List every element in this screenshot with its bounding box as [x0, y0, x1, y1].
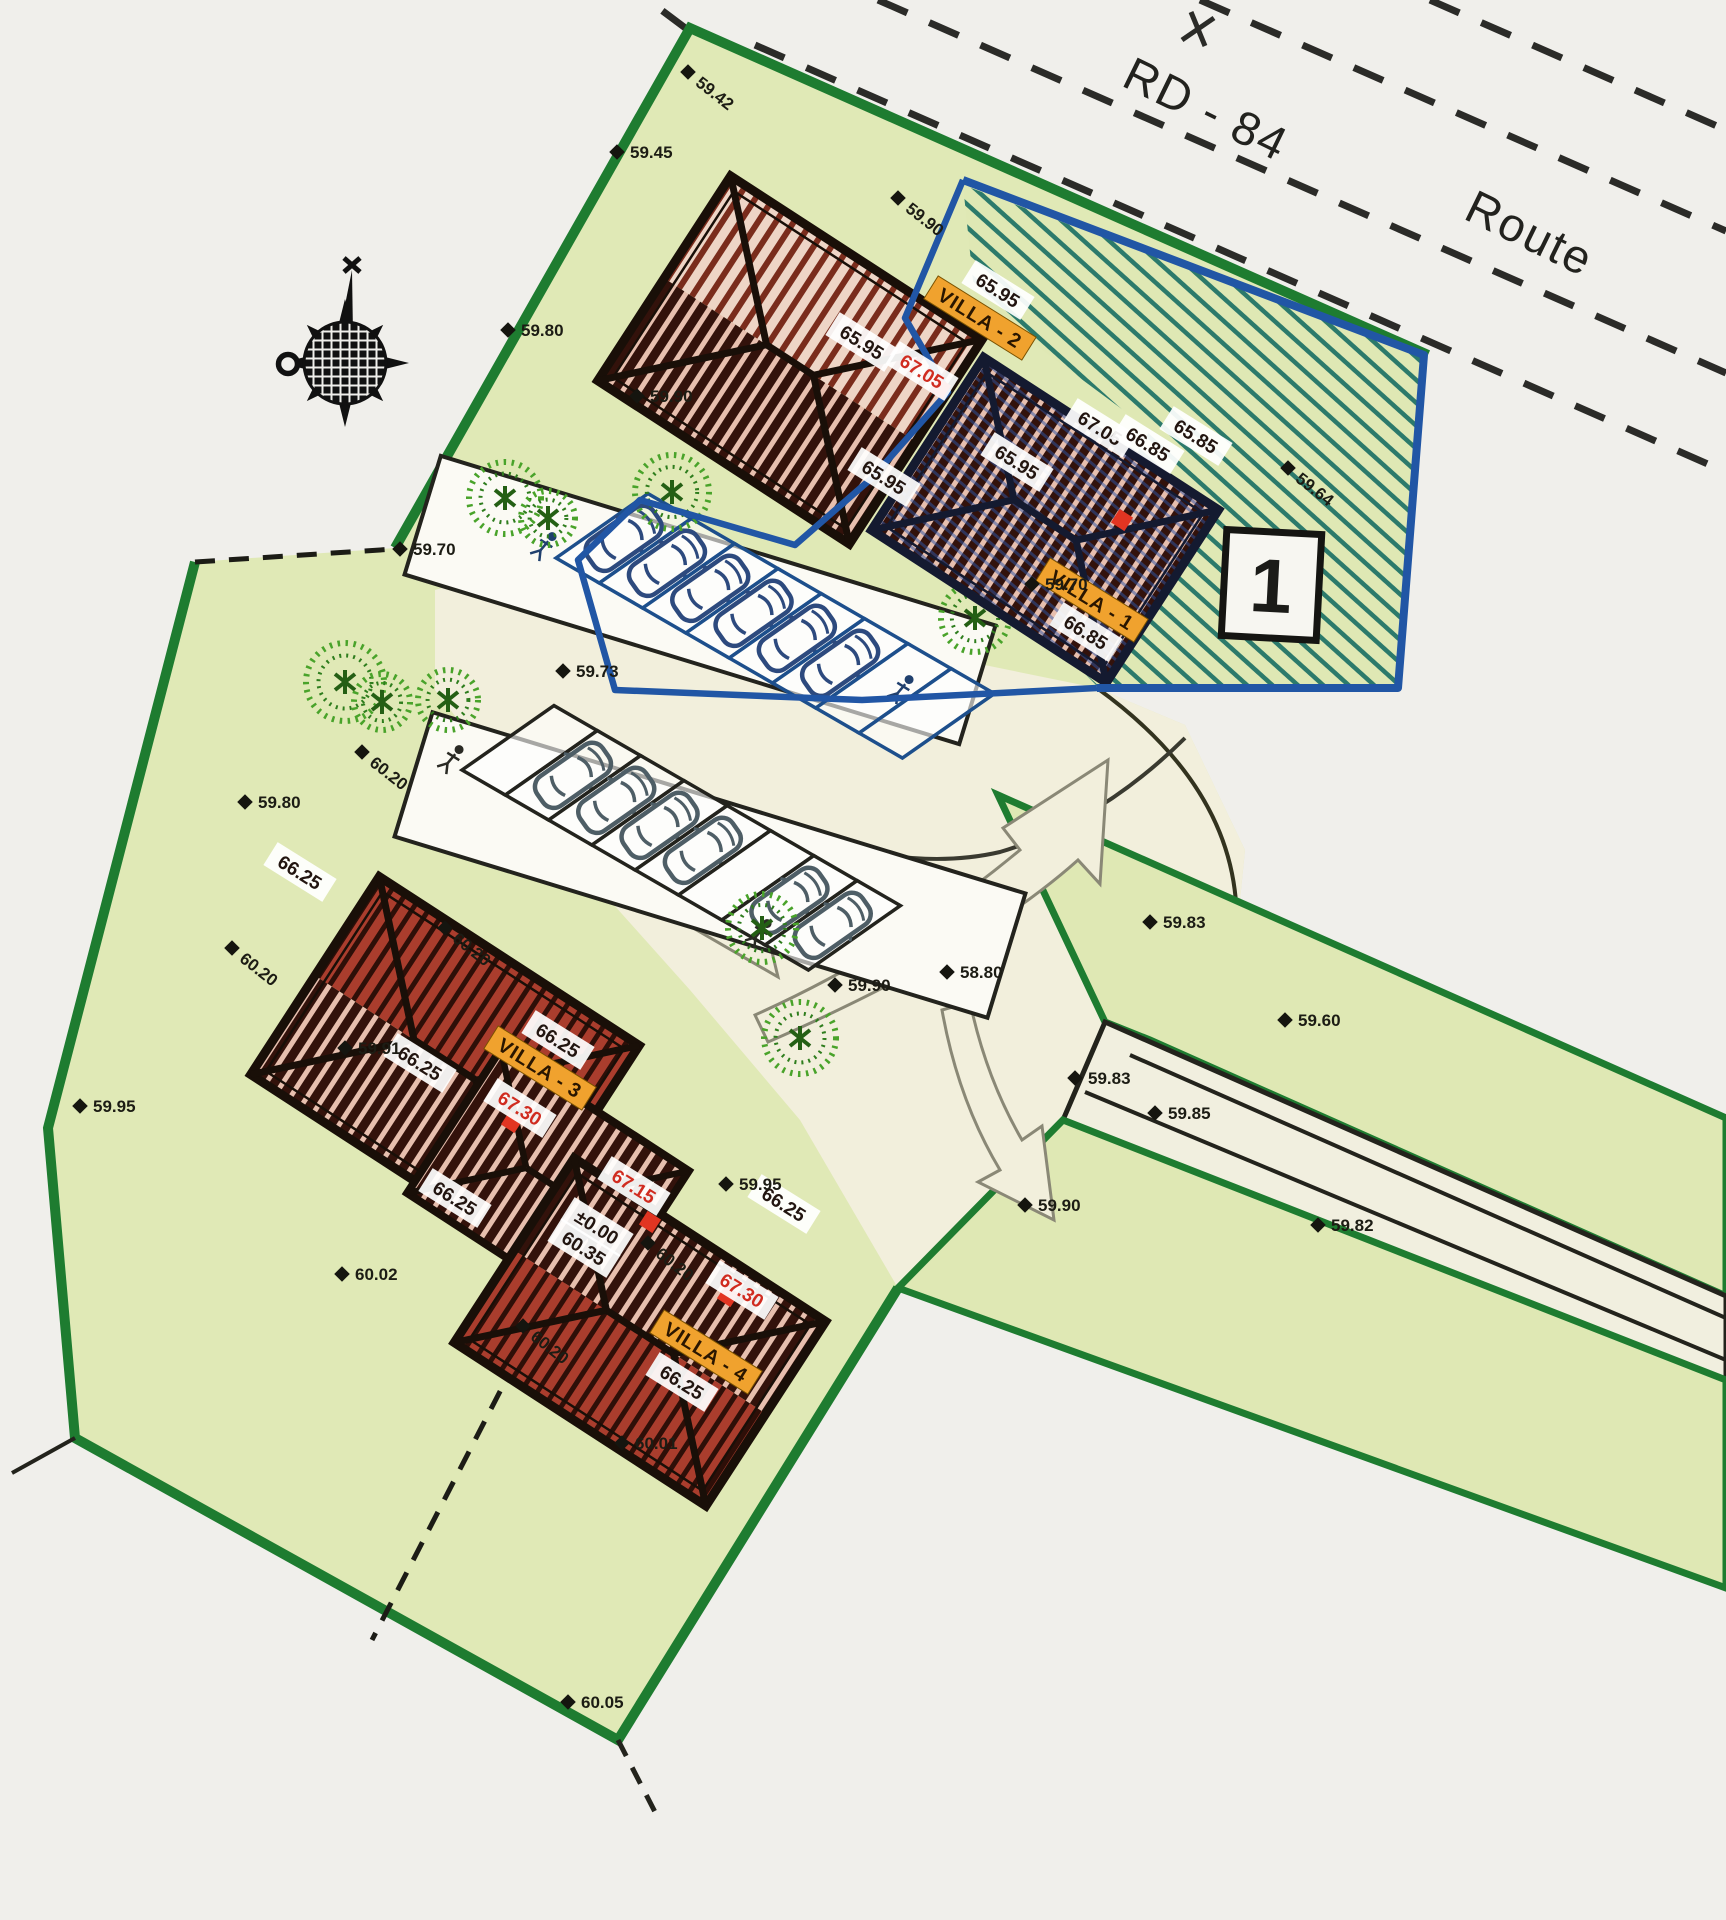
spot-elevation-value: 59.80 [258, 793, 301, 812]
compass-west-ring [279, 355, 298, 374]
spot-elevation-value: 59.85 [1168, 1104, 1211, 1123]
spot-elevation-value: 59.80 [521, 321, 564, 340]
spot-elevation-value: 59.73 [576, 662, 619, 681]
spot-elevation-value: 59.83 [1088, 1069, 1131, 1088]
spot-elevation-value: 59.90 [650, 387, 693, 406]
spot-elevation-value: 59.82 [1331, 1216, 1374, 1235]
spot-elevation-value: 59.95 [93, 1097, 136, 1116]
spot-elevation-value: 59.83 [1163, 913, 1206, 932]
spot-elevation-value: 59.70 [1045, 575, 1088, 594]
spot-elevation-value: 59.90 [848, 976, 891, 995]
spot-elevation-value: 59.90 [1038, 1196, 1081, 1215]
spot-elevation-value: 59.45 [630, 143, 673, 162]
spot-elevation-value: 59.70 [413, 540, 456, 559]
spot-elevation-value: 60.01 [635, 1434, 678, 1453]
spot-elevation-value: 60.05 [581, 1693, 624, 1712]
lot-number-box: 1 [1221, 530, 1321, 641]
lot-number: 1 [1248, 543, 1295, 630]
site-plan-svg: RD - 84 Route [0, 0, 1726, 1920]
spot-elevation-value: 59.95 [739, 1175, 782, 1194]
spot-elevation-value: 58.80 [960, 963, 1003, 982]
spot-elevation-value: 59.91 [358, 1039, 401, 1058]
spot-elevation-value: 59.60 [1298, 1011, 1341, 1030]
site-plan-page: RD - 84 Route [0, 0, 1726, 1920]
spot-elevation-value: 60.02 [355, 1265, 398, 1284]
compass-globe [304, 322, 386, 404]
